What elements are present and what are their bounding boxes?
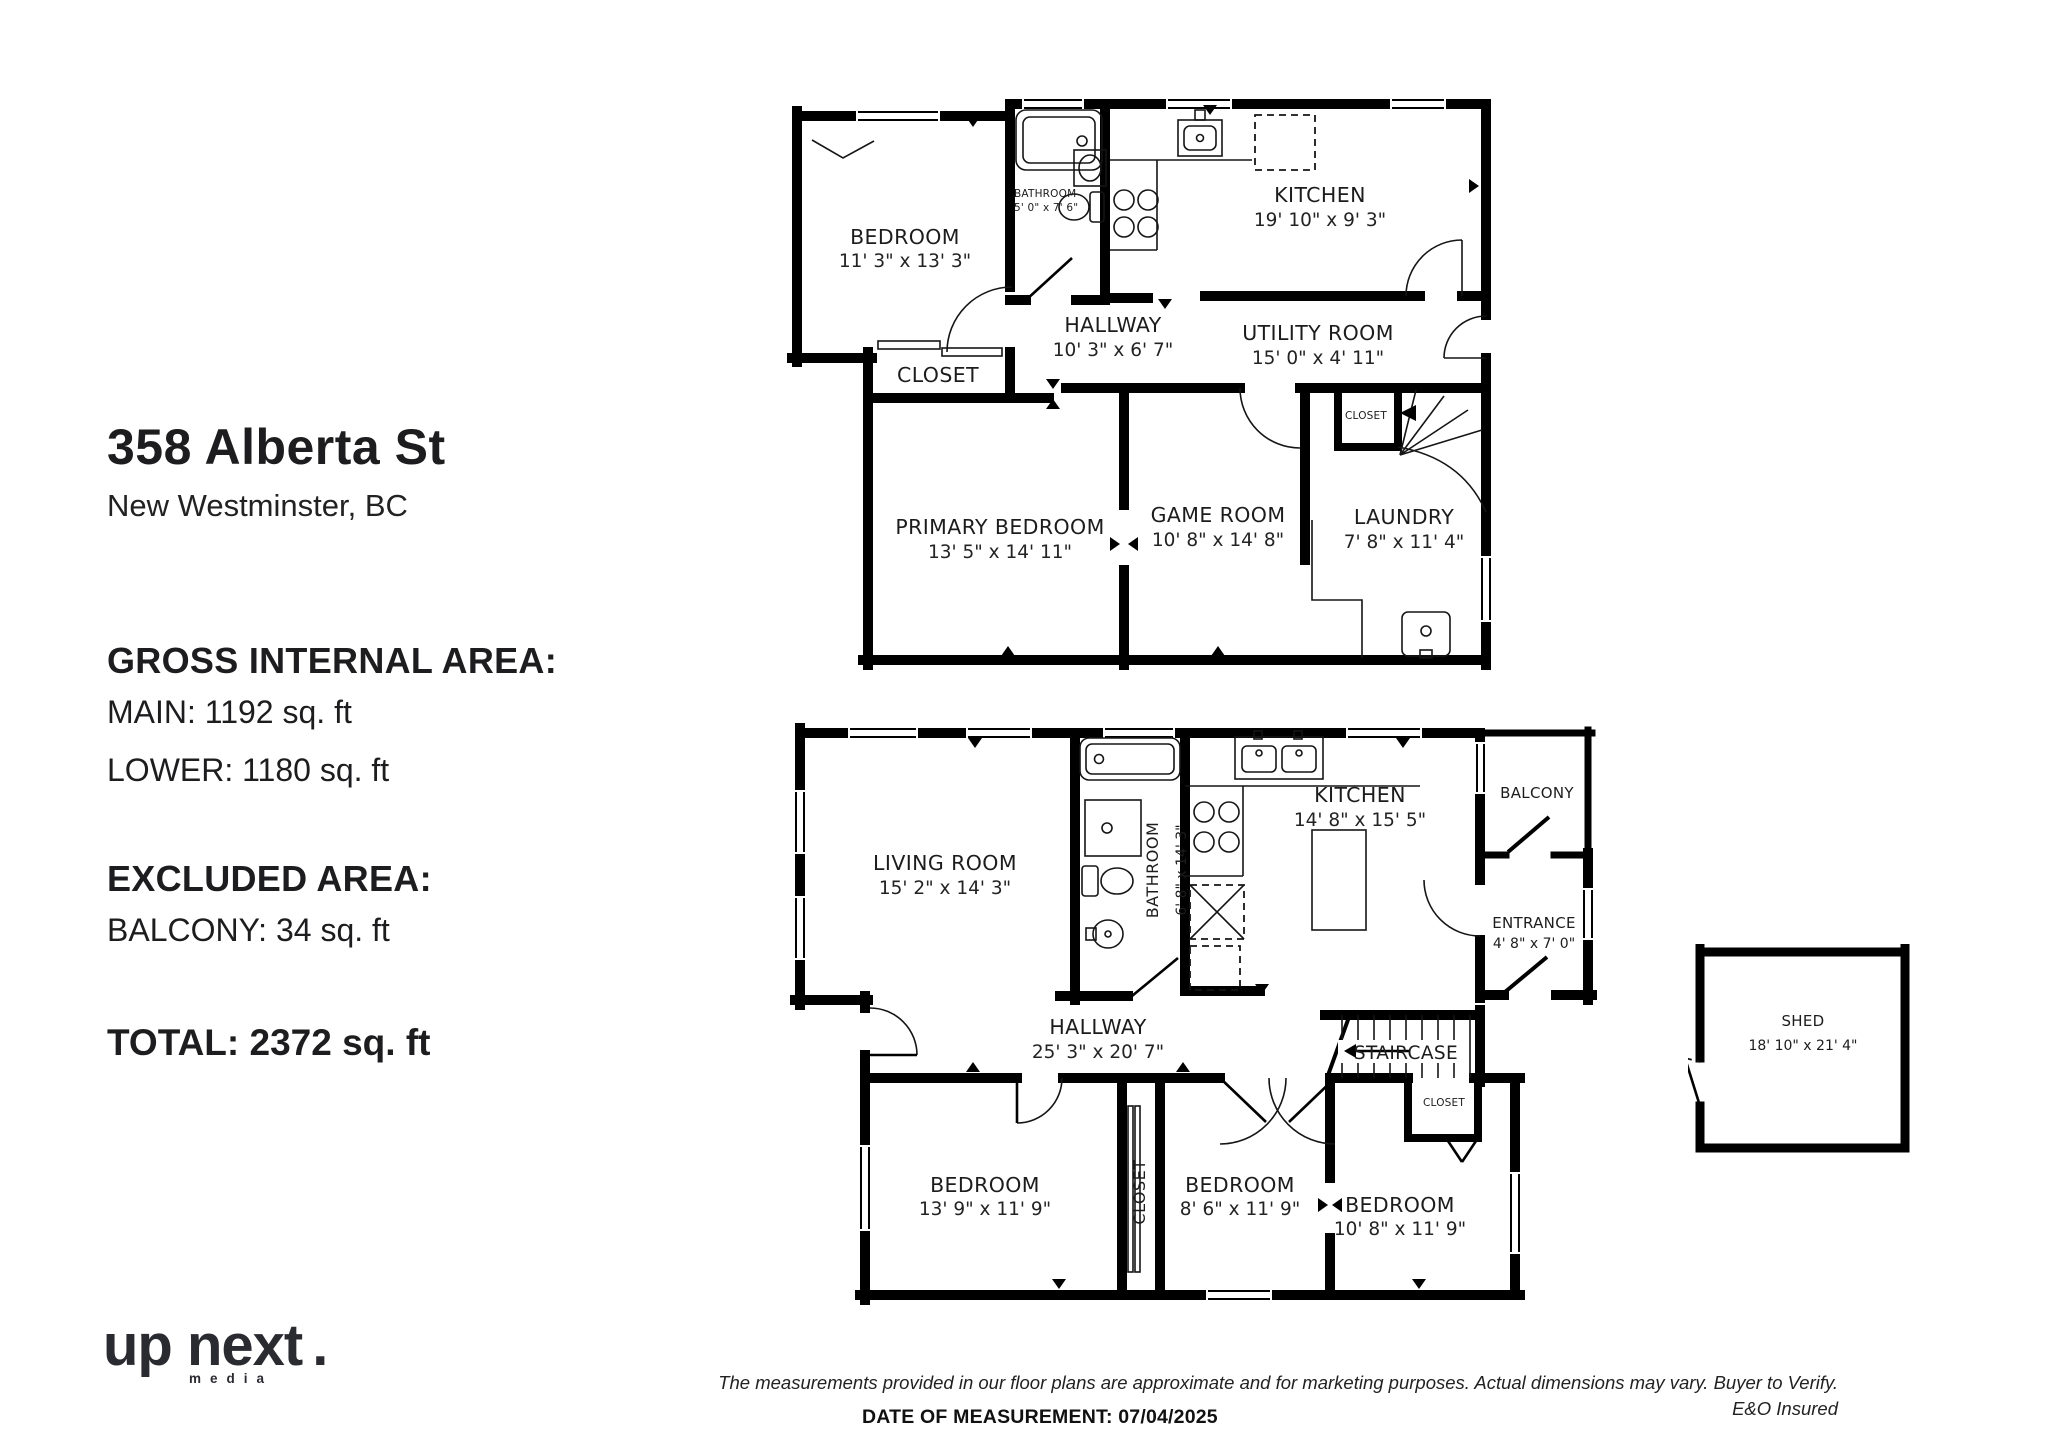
floorplan-sheet: 358 Alberta St New Westminster, BC GROSS… [0, 0, 2048, 1448]
room-label-shed: SHED [1781, 1012, 1824, 1030]
room-dims-lower-kitchen: 14' 8" x 15' 5" [1294, 810, 1426, 831]
room-dims-lower-bathroom: 6' 8" x 14' 3" [1174, 824, 1190, 915]
logo-sub-text: media [189, 1371, 328, 1386]
room-label-laundry: LAUNDRY [1354, 505, 1454, 529]
room-dims-laundry: 7' 8" x 11' 4" [1344, 532, 1465, 553]
lower-area-value: LOWER: 1180 sq. ft [107, 752, 389, 789]
room-dims-living: 15' 2" x 14' 3" [879, 878, 1011, 899]
kitchen-island [1312, 830, 1366, 930]
main-fridge-dashed-icon [1255, 115, 1315, 170]
balcony-area-value: BALCONY: 34 sq. ft [107, 912, 390, 949]
room-label-bedroom: BEDROOM [850, 225, 960, 249]
laundry-sink-icon [1402, 612, 1450, 658]
gross-area-title: GROSS INTERNAL AREA: [107, 640, 557, 682]
room-dims-utility: 15' 0" x 4' 11" [1252, 348, 1384, 369]
room-dims-shed: 18' 10" x 21' 4" [1748, 1038, 1857, 1054]
shower-icon [1085, 800, 1141, 856]
room-label-living: LIVING ROOM [873, 851, 1017, 875]
room-label-stair-closet: CLOSET [1345, 410, 1387, 422]
room-dims-bathroom: 5' 0" x 7' 6" [1014, 202, 1078, 214]
lower-floor-plan: LIVING ROOM 15' 2" x 14' 3" BATHROOM 6' … [790, 718, 1602, 1318]
room-label-hallway: HALLWAY [1064, 313, 1161, 337]
upnext-media-logo: up next. media [103, 1312, 328, 1386]
room-label-closet: CLOSET [897, 363, 979, 387]
room-label-mid-closet: CLOSET [1130, 1159, 1149, 1224]
room-dims-bedroom-mid: 8' 6" x 11' 9" [1180, 1199, 1301, 1220]
room-label-utility: UTILITY ROOM [1242, 321, 1394, 345]
main-doors [947, 240, 1486, 448]
date-of-measurement: DATE OF MEASUREMENT: 07/04/2025 [862, 1406, 1218, 1429]
room-label-bedroom-right: BEDROOM [1345, 1193, 1455, 1217]
room-label-entrance: ENTRANCE [1492, 914, 1576, 932]
page-title: 358 Alberta St [107, 418, 446, 476]
main-kitchen-sink-icon [1178, 110, 1222, 156]
disclaimer-text: The measurements provided in our floor p… [718, 1372, 1838, 1394]
room-dims-kitchen: 19' 10" x 9' 3" [1254, 210, 1386, 231]
main-area-value: MAIN: 1192 sq. ft [107, 694, 352, 731]
double-sink-icon [1235, 731, 1323, 779]
listing-city: New Westminster, BC [107, 488, 408, 524]
room-dims-entrance: 4' 8" x 7' 0" [1493, 936, 1575, 952]
shed-door-leaf [1688, 1058, 1700, 1106]
excluded-area-title: EXCLUDED AREA: [107, 858, 432, 900]
room-label-lower-hallway: HALLWAY [1049, 1015, 1146, 1039]
room-dims-primary: 13' 5" x 14' 11" [928, 542, 1072, 563]
total-area-value: TOTAL: 2372 sq. ft [107, 1022, 430, 1064]
main-floor-plan: BEDROOM 11' 3" x 13' 3" BATHROOM 5' 0" x… [785, 90, 1500, 680]
room-label-lower-kitchen: KITCHEN [1314, 783, 1406, 807]
eo-insured-text: E&O Insured [1732, 1398, 1838, 1420]
room-dims-bedroom: 11' 3" x 13' 3" [839, 251, 971, 272]
main-bathtub-icon [1016, 110, 1102, 170]
dashed-appliances [1190, 885, 1244, 990]
pedestal-sink-icon [1086, 920, 1123, 948]
room-dims-hallway: 10' 3" x 6' 7" [1053, 340, 1174, 361]
room-dims-bedroom-left: 13' 9" x 11' 9" [919, 1199, 1051, 1220]
lower-bathtub-icon [1080, 738, 1180, 780]
room-label-balcony: BALCONY [1500, 784, 1574, 802]
room-label-primary: PRIMARY BEDROOM [895, 515, 1104, 539]
stairs-direction-arrow [1400, 405, 1416, 421]
bedroom-corner-detail [812, 140, 874, 158]
logo-brand-text: up next [103, 1313, 302, 1378]
room-label-lower-stair-closet: CLOSET [1423, 1097, 1465, 1109]
room-dims-lower-hallway: 25' 3" x 20' 7" [1032, 1042, 1164, 1063]
room-dims-game: 10' 8" x 14' 8" [1152, 530, 1284, 551]
room-dims-bedroom-right: 10' 8" x 11' 9" [1334, 1219, 1466, 1240]
room-label-game: GAME ROOM [1151, 503, 1286, 527]
room-label-kitchen: KITCHEN [1274, 183, 1366, 207]
room-label-bedroom-left: BEDROOM [930, 1173, 1040, 1197]
shed-plan: SHED 18' 10" x 21' 4" [1688, 944, 1928, 1159]
room-label-bedroom-mid: BEDROOM [1185, 1173, 1295, 1197]
logo-dot: . [312, 1313, 328, 1378]
room-label-lower-bathroom: BATHROOM [1143, 822, 1162, 919]
room-label-staircase: STAIRCASE [1354, 1043, 1458, 1064]
room-label-bathroom: BATHROOM [1014, 188, 1076, 200]
main-stove-icon [1110, 160, 1252, 250]
lower-toilet-icon [1082, 866, 1133, 896]
